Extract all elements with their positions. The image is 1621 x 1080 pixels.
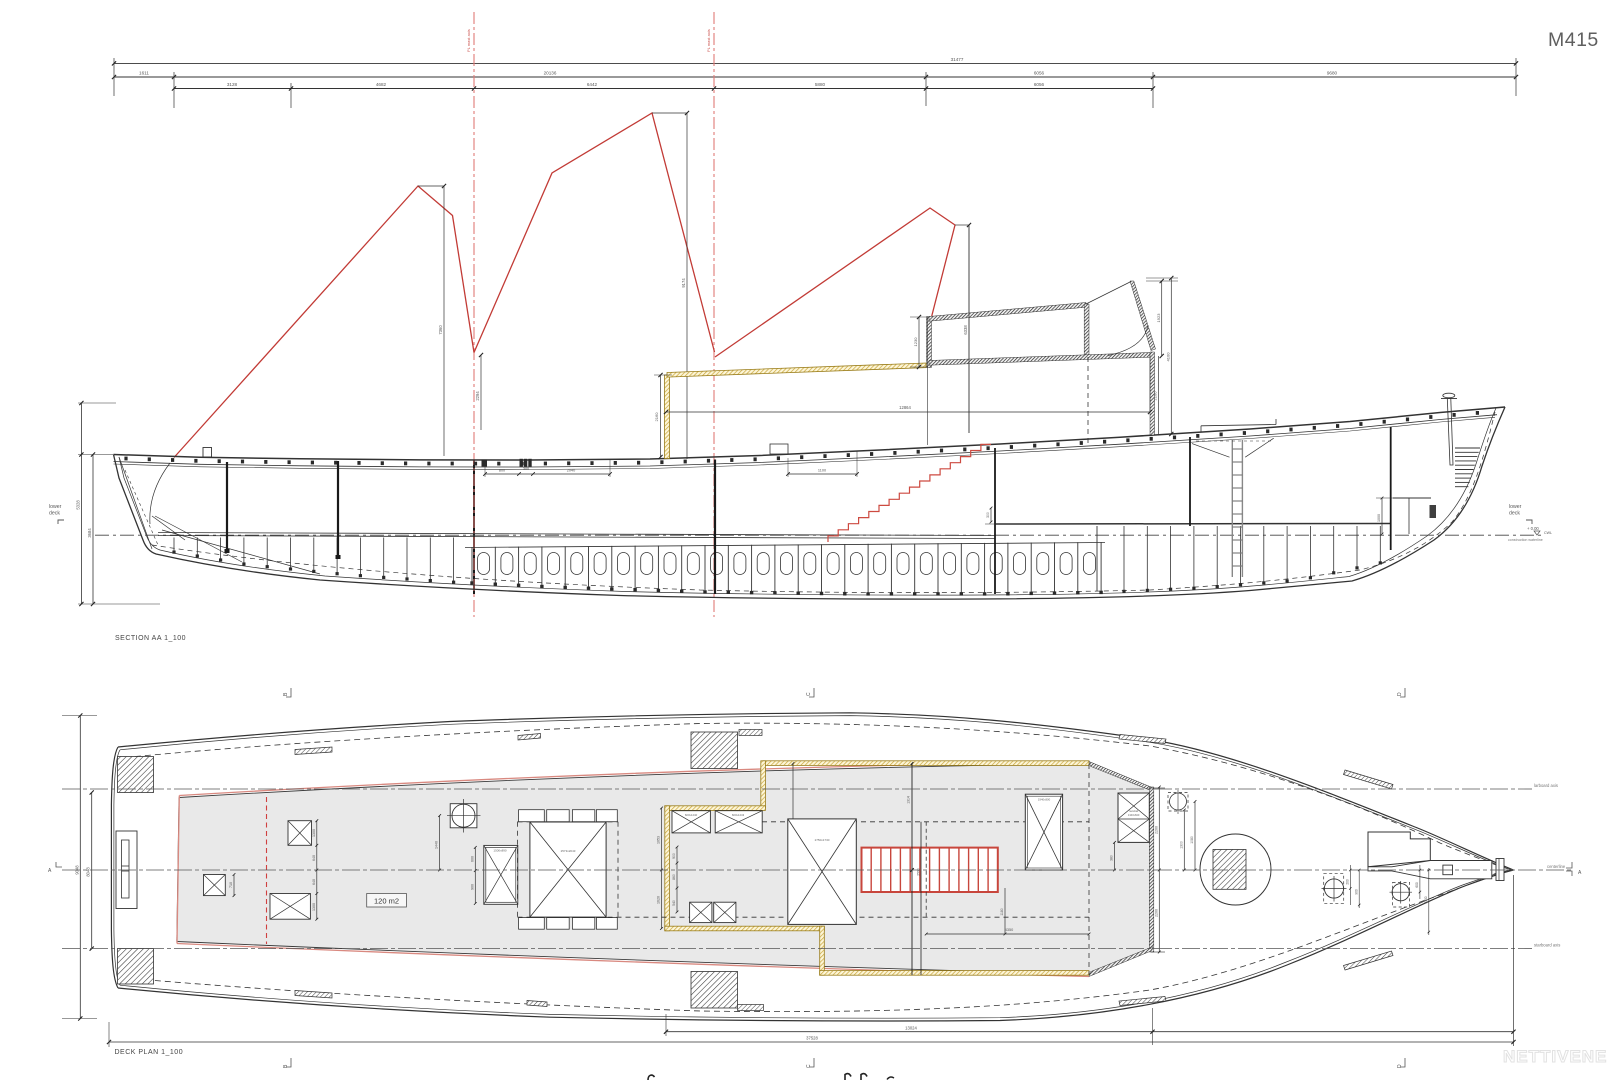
svg-text:900: 900 — [470, 884, 474, 890]
svg-text:2200: 2200 — [1154, 826, 1158, 834]
svg-text:1053: 1053 — [657, 836, 661, 844]
svg-text:380: 380 — [1110, 855, 1114, 861]
svg-text:1314: 1314 — [907, 796, 911, 804]
svg-text:1940x900: 1940x900 — [1038, 798, 1051, 802]
svg-text:2200: 2200 — [1154, 909, 1158, 917]
svg-text:5880: 5880 — [815, 82, 826, 87]
svg-text:6056: 6056 — [1034, 71, 1045, 76]
svg-text:3128: 3128 — [227, 82, 238, 87]
svg-text:800: 800 — [499, 469, 505, 473]
svg-text:300: 300 — [523, 467, 529, 471]
svg-text:starboard axis: starboard axis — [1534, 943, 1560, 948]
svg-text:1300: 1300 — [312, 903, 316, 911]
svg-text:D: D — [1397, 692, 1403, 696]
svg-text:20136: 20136 — [544, 71, 557, 76]
svg-text:1100: 1100 — [818, 469, 826, 473]
svg-text:12864: 12864 — [899, 405, 911, 410]
svg-text:860: 860 — [672, 874, 676, 880]
svg-text:4100: 4100 — [1165, 352, 1170, 362]
svg-text:SECTION AA 1_100: SECTION AA 1_100 — [115, 635, 186, 642]
svg-text:1340x840: 1340x840 — [1128, 813, 1140, 817]
svg-text:13024: 13024 — [905, 1026, 917, 1031]
svg-text:1300: 1300 — [1179, 841, 1183, 849]
svg-text:deck: deck — [1509, 511, 1520, 517]
svg-text:1000: 1000 — [1377, 514, 1381, 522]
svg-text:2750x1730: 2750x1730 — [815, 838, 830, 842]
svg-text:CWL: CWL — [1544, 531, 1552, 535]
svg-text:2294: 2294 — [475, 391, 480, 401]
svg-text:1620: 1620 — [657, 896, 661, 904]
svg-text:1611: 1611 — [139, 71, 149, 76]
svg-text:120 m2: 120 m2 — [374, 896, 399, 905]
svg-text:9680: 9680 — [1327, 71, 1338, 76]
svg-text:640: 640 — [312, 879, 316, 885]
svg-text:3300: 3300 — [1424, 896, 1428, 903]
svg-text:900: 900 — [1354, 889, 1358, 895]
svg-text:2100: 2100 — [1153, 391, 1158, 401]
svg-text:+ 0.00: + 0.00 — [1527, 526, 1539, 531]
svg-text:37528: 37528 — [806, 1036, 818, 1041]
svg-text:3684: 3684 — [87, 528, 92, 538]
svg-text:2573x2043: 2573x2043 — [561, 849, 576, 853]
svg-text:larboard axis: larboard axis — [1534, 783, 1558, 788]
svg-text:7360: 7360 — [438, 325, 443, 335]
svg-text:1230: 1230 — [913, 337, 918, 347]
svg-text:deck: deck — [49, 511, 60, 517]
svg-text:construction waterline: construction waterline — [1508, 538, 1543, 542]
svg-text:640: 640 — [312, 855, 316, 861]
svg-text:1500x890: 1500x890 — [493, 849, 507, 853]
svg-text:6442: 6442 — [587, 82, 598, 87]
svg-text:600x1243: 600x1243 — [732, 813, 745, 817]
svg-text:1300: 1300 — [312, 829, 316, 837]
svg-text:900: 900 — [672, 853, 676, 859]
svg-text:2160: 2160 — [654, 412, 659, 422]
svg-text:PL mast axis: PL mast axis — [466, 29, 471, 52]
svg-text:5328: 5328 — [75, 500, 80, 510]
svg-text:4682: 4682 — [376, 82, 387, 87]
svg-text:lower: lower — [49, 504, 62, 510]
svg-text:C: C — [806, 692, 812, 696]
svg-text:1923: 1923 — [1156, 313, 1161, 323]
svg-text:300: 300 — [986, 512, 990, 518]
svg-text:31477: 31477 — [951, 57, 964, 62]
svg-text:lower: lower — [1509, 504, 1522, 510]
svg-text:6056: 6056 — [1034, 82, 1045, 87]
svg-text:NETTIVENE: NETTIVENE — [1503, 1047, 1607, 1066]
svg-text:centerline: centerline — [1547, 864, 1566, 869]
svg-text:540: 540 — [672, 900, 676, 906]
svg-text:1080: 1080 — [1190, 836, 1194, 844]
svg-text:2040: 2040 — [567, 469, 575, 473]
svg-text:600x1240: 600x1240 — [685, 813, 698, 817]
svg-text:handrail: handrail — [1129, 809, 1139, 813]
svg-text:600: 600 — [470, 856, 474, 862]
svg-text:M415: M415 — [1548, 29, 1599, 51]
svg-text:2590: 2590 — [917, 868, 921, 876]
svg-text:1440: 1440 — [435, 841, 439, 849]
svg-text:600: 600 — [1415, 882, 1419, 888]
svg-text:200: 200 — [1346, 879, 1350, 885]
svg-text:8048: 8048 — [86, 867, 91, 877]
svg-text:9174: 9174 — [681, 278, 686, 288]
svg-text:6338: 6338 — [963, 325, 968, 335]
svg-text:DECK PLAN 1_100: DECK PLAN 1_100 — [115, 1049, 184, 1056]
svg-text:710: 710 — [229, 882, 233, 888]
svg-text:PL mast axis: PL mast axis — [706, 29, 711, 52]
svg-text:1180: 1180 — [1000, 908, 1004, 915]
svg-text:4350: 4350 — [1005, 928, 1013, 932]
